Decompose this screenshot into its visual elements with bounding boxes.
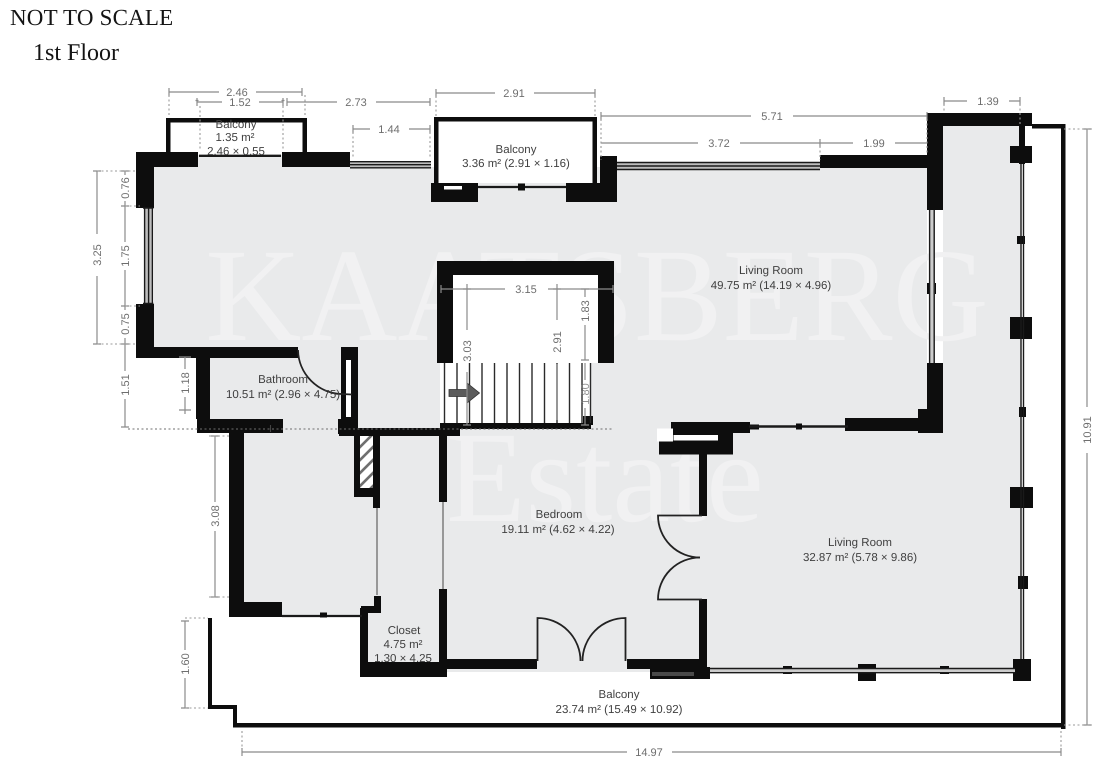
svg-text:3.15: 3.15 — [515, 284, 536, 296]
svg-text:1.30 × 4.25: 1.30 × 4.25 — [374, 653, 432, 665]
svg-text:1.99: 1.99 — [863, 138, 884, 150]
svg-text:3.08: 3.08 — [210, 505, 222, 526]
svg-text:0.75: 0.75 — [120, 313, 132, 334]
svg-text:1.75: 1.75 — [120, 245, 132, 266]
svg-text:10.51 m² (2.96 × 4.75): 10.51 m² (2.96 × 4.75) — [226, 389, 340, 401]
svg-text:2.46 × 0.55: 2.46 × 0.55 — [207, 146, 265, 158]
svg-text:Balcony: Balcony — [216, 119, 257, 131]
svg-text:3.72: 3.72 — [708, 138, 729, 150]
svg-text:0.76: 0.76 — [120, 177, 132, 198]
svg-text:Living Room: Living Room — [739, 265, 803, 277]
svg-text:1.60: 1.60 — [180, 653, 192, 674]
svg-text:1.44: 1.44 — [378, 124, 399, 136]
svg-text:Living Room: Living Room — [828, 537, 892, 549]
svg-text:Bathroom: Bathroom — [258, 374, 308, 386]
svg-text:1.39: 1.39 — [977, 96, 998, 108]
svg-text:Balcony: Balcony — [496, 144, 537, 156]
svg-text:Closet: Closet — [388, 625, 421, 637]
svg-text:3.25: 3.25 — [92, 244, 104, 265]
svg-text:2.73: 2.73 — [345, 97, 366, 109]
svg-text:1.51: 1.51 — [120, 374, 132, 395]
svg-text:5.71: 5.71 — [761, 111, 782, 123]
svg-text:1st Floor: 1st Floor — [33, 40, 119, 66]
svg-text:2.91: 2.91 — [552, 331, 564, 352]
svg-text:4.75 m²: 4.75 m² — [384, 639, 423, 651]
svg-text:10.91: 10.91 — [1082, 416, 1094, 444]
svg-text:23.74 m² (15.49 × 10.92): 23.74 m² (15.49 × 10.92) — [556, 704, 683, 716]
svg-text:1.52: 1.52 — [229, 97, 250, 109]
svg-text:1.35 m²: 1.35 m² — [216, 132, 255, 144]
svg-text:32.87 m² (5.78 × 9.86): 32.87 m² (5.78 × 9.86) — [803, 552, 917, 564]
svg-text:1.80: 1.80 — [580, 383, 592, 404]
svg-text:14.97: 14.97 — [635, 747, 663, 759]
svg-text:49.75 m² (14.19 × 4.96): 49.75 m² (14.19 × 4.96) — [711, 280, 832, 292]
svg-text:3.36 m² (2.91 × 1.16): 3.36 m² (2.91 × 1.16) — [462, 158, 570, 170]
svg-text:3.03: 3.03 — [462, 340, 474, 361]
svg-text:1.83: 1.83 — [580, 300, 592, 321]
svg-text:Balcony: Balcony — [599, 689, 640, 701]
svg-text:19.11 m² (4.62 × 4.22): 19.11 m² (4.62 × 4.22) — [501, 524, 614, 536]
svg-text:1.18: 1.18 — [180, 372, 192, 393]
svg-text:NOT TO SCALE: NOT TO SCALE — [10, 5, 173, 30]
svg-text:Bedroom: Bedroom — [536, 509, 583, 521]
svg-text:2.91: 2.91 — [503, 88, 524, 100]
